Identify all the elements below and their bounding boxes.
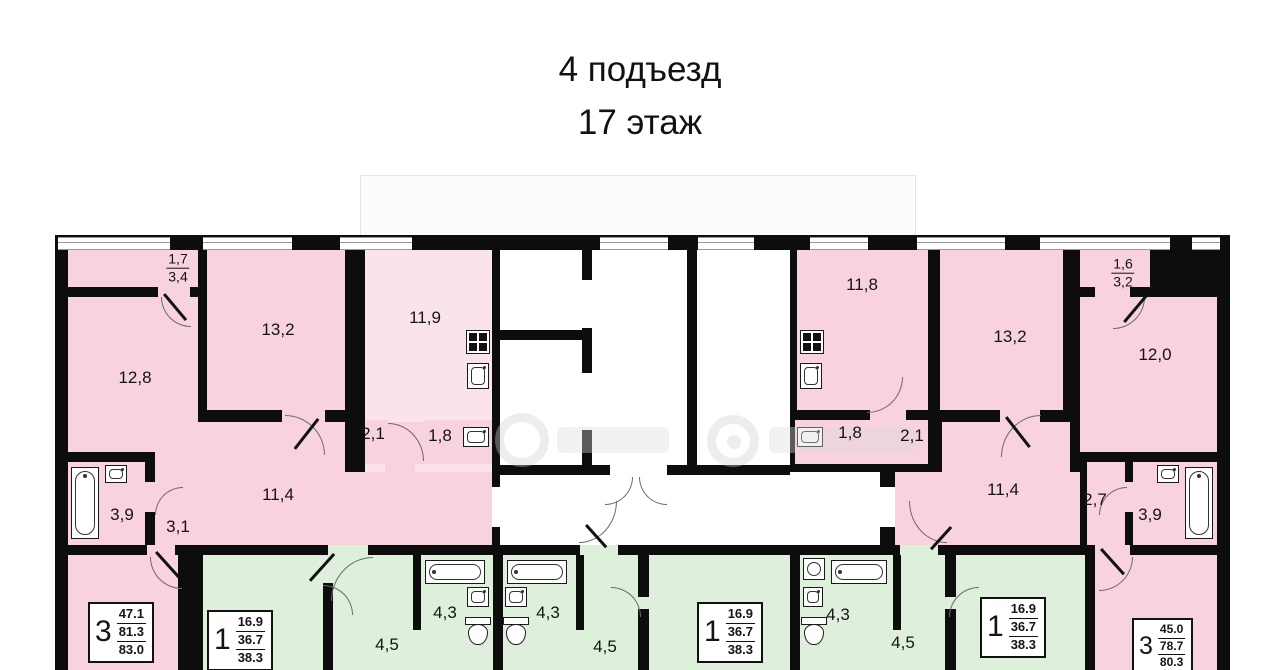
room-area-label: 2,1 bbox=[900, 426, 924, 446]
apartment-rooms-count: 3 bbox=[1139, 634, 1153, 659]
common-corridor bbox=[500, 472, 880, 545]
room-area-label: 4,5 bbox=[375, 635, 399, 655]
wall bbox=[500, 330, 592, 340]
balcony-full-area: 3,4 bbox=[166, 269, 189, 286]
wall bbox=[500, 465, 610, 475]
room-area-label: 11,8 bbox=[846, 275, 878, 295]
total-area: 38.3 bbox=[726, 642, 755, 659]
apartment-info-1-b: 1 16.9 36.7 38.3 bbox=[697, 602, 763, 663]
floor-plan: 1,7 3,4 12,8 13,2 11,9 2,1 1,8 3,9 3,1 1… bbox=[55, 235, 1230, 670]
floor-plan-page: 4 подъезд 17 этаж bbox=[0, 0, 1280, 670]
room-area-label: 2,1 bbox=[361, 424, 385, 444]
room-12-0 bbox=[1080, 297, 1217, 452]
balcony-left-area-label: 1,7 3,4 bbox=[166, 251, 189, 286]
room-area-label: 4,3 bbox=[433, 603, 457, 623]
total-area: 83.0 bbox=[117, 642, 146, 659]
apartment-area: 36.7 bbox=[236, 632, 265, 650]
total-area: 80.3 bbox=[1158, 655, 1185, 670]
room-area-label: 11,4 bbox=[262, 485, 294, 505]
room-area-label: 11,4 bbox=[987, 480, 1019, 500]
hall-11-4-left bbox=[155, 472, 492, 545]
balcony-reduced-area: 1,7 bbox=[166, 251, 189, 269]
door-opening bbox=[385, 464, 415, 472]
wall bbox=[945, 609, 956, 670]
room-area-label: 4,5 bbox=[891, 633, 915, 653]
apartment-info-1-c: 1 16.9 36.7 38.3 bbox=[980, 597, 1046, 658]
window-icon bbox=[917, 237, 1005, 250]
apartment-rooms-count: 1 bbox=[214, 625, 231, 655]
bathtub-icon bbox=[507, 560, 567, 584]
kitchen-sink-icon bbox=[800, 363, 822, 389]
apartment-info-3-right: 3 45.0 78.7 80.3 bbox=[1132, 618, 1193, 670]
wall bbox=[893, 555, 901, 630]
wall bbox=[576, 555, 584, 630]
stove-icon bbox=[466, 330, 490, 354]
bathtub-icon bbox=[831, 560, 887, 584]
sink-icon bbox=[803, 587, 823, 607]
wall bbox=[582, 250, 592, 280]
apartment-area: 36.7 bbox=[726, 624, 755, 642]
apartment-rooms-count: 1 bbox=[987, 612, 1004, 642]
apartment-info-1-a: 1 16.9 36.7 38.3 bbox=[207, 610, 273, 670]
sink-icon bbox=[505, 587, 527, 607]
room-area-label: 11,9 bbox=[409, 308, 441, 328]
page-subtitle: 17 этаж bbox=[0, 103, 1280, 143]
wall bbox=[413, 555, 421, 630]
room-area-label: 1,8 bbox=[428, 426, 452, 446]
door-opening bbox=[147, 545, 175, 555]
door-opening bbox=[145, 482, 155, 512]
window-icon bbox=[203, 237, 292, 250]
door-opening bbox=[580, 545, 618, 555]
room-area-label: 4,5 bbox=[593, 637, 617, 657]
total-area: 38.3 bbox=[236, 650, 265, 667]
apartment-rooms-count: 3 bbox=[95, 617, 112, 647]
room-area-label: 2,7 bbox=[1083, 490, 1107, 510]
kitchen-sink-icon bbox=[467, 363, 489, 389]
window-icon bbox=[1040, 237, 1170, 250]
apartment-area: 78.7 bbox=[1158, 639, 1185, 656]
door-opening bbox=[388, 410, 424, 422]
room-area-label: 13,2 bbox=[993, 327, 1026, 347]
door-opening bbox=[492, 487, 500, 527]
window-icon bbox=[58, 237, 170, 250]
living-area: 47.1 bbox=[117, 606, 146, 624]
balcony-right-area-label: 1,6 3,2 bbox=[1111, 256, 1134, 291]
wall bbox=[945, 555, 956, 597]
sink-icon bbox=[463, 427, 489, 447]
room-area-label: 3,9 bbox=[110, 505, 134, 525]
room-area-label: 4,3 bbox=[826, 605, 850, 625]
room-area-label: 1,8 bbox=[838, 423, 862, 443]
room-area-label: 12,8 bbox=[118, 368, 151, 388]
sink-icon bbox=[1157, 465, 1179, 483]
room-area-label: 3,1 bbox=[166, 517, 190, 537]
toilet-icon bbox=[465, 617, 491, 645]
wall bbox=[638, 555, 649, 597]
living-area: 16.9 bbox=[1009, 601, 1038, 619]
wall bbox=[667, 465, 790, 475]
living-area: 16.9 bbox=[726, 606, 755, 624]
stove-icon bbox=[800, 330, 824, 354]
stair-elevator-core bbox=[500, 250, 790, 472]
living-area: 45.0 bbox=[1158, 622, 1185, 639]
balcony-reduced-area: 1,6 bbox=[1111, 256, 1134, 274]
window-icon bbox=[698, 237, 754, 250]
room-area-label: 4,3 bbox=[536, 603, 560, 623]
apartment-info-3-left: 3 47.1 81.3 83.0 bbox=[88, 602, 154, 663]
total-area: 38.3 bbox=[1009, 637, 1038, 654]
window-icon bbox=[810, 237, 868, 250]
wall bbox=[687, 250, 697, 472]
bathtub-icon bbox=[1185, 467, 1213, 539]
door-opening bbox=[880, 487, 895, 527]
sink-icon bbox=[797, 427, 823, 447]
sink-icon bbox=[467, 587, 489, 607]
apartment-area: 81.3 bbox=[117, 624, 146, 642]
balcony-full-area: 3,2 bbox=[1111, 274, 1134, 291]
living-area: 16.9 bbox=[236, 614, 265, 632]
room-area-label: 3,9 bbox=[1138, 505, 1162, 525]
bathtub-icon bbox=[71, 467, 99, 539]
window-icon bbox=[1192, 237, 1220, 250]
washing-machine-icon bbox=[803, 558, 825, 580]
room-area-label: 12,0 bbox=[1138, 345, 1171, 365]
toilet-icon bbox=[503, 617, 529, 645]
window-icon bbox=[340, 237, 412, 250]
sink-icon bbox=[105, 465, 127, 483]
window-icon bbox=[600, 237, 668, 250]
wall bbox=[638, 609, 649, 670]
room-area-label: 13,2 bbox=[261, 320, 294, 340]
bathtub-icon bbox=[425, 560, 485, 584]
apartment-area: 36.7 bbox=[1009, 619, 1038, 637]
building-outline bbox=[360, 175, 916, 237]
toilet-icon bbox=[801, 617, 827, 645]
apartment-rooms-count: 1 bbox=[704, 617, 721, 647]
page-title: 4 подъезд bbox=[0, 50, 1280, 90]
